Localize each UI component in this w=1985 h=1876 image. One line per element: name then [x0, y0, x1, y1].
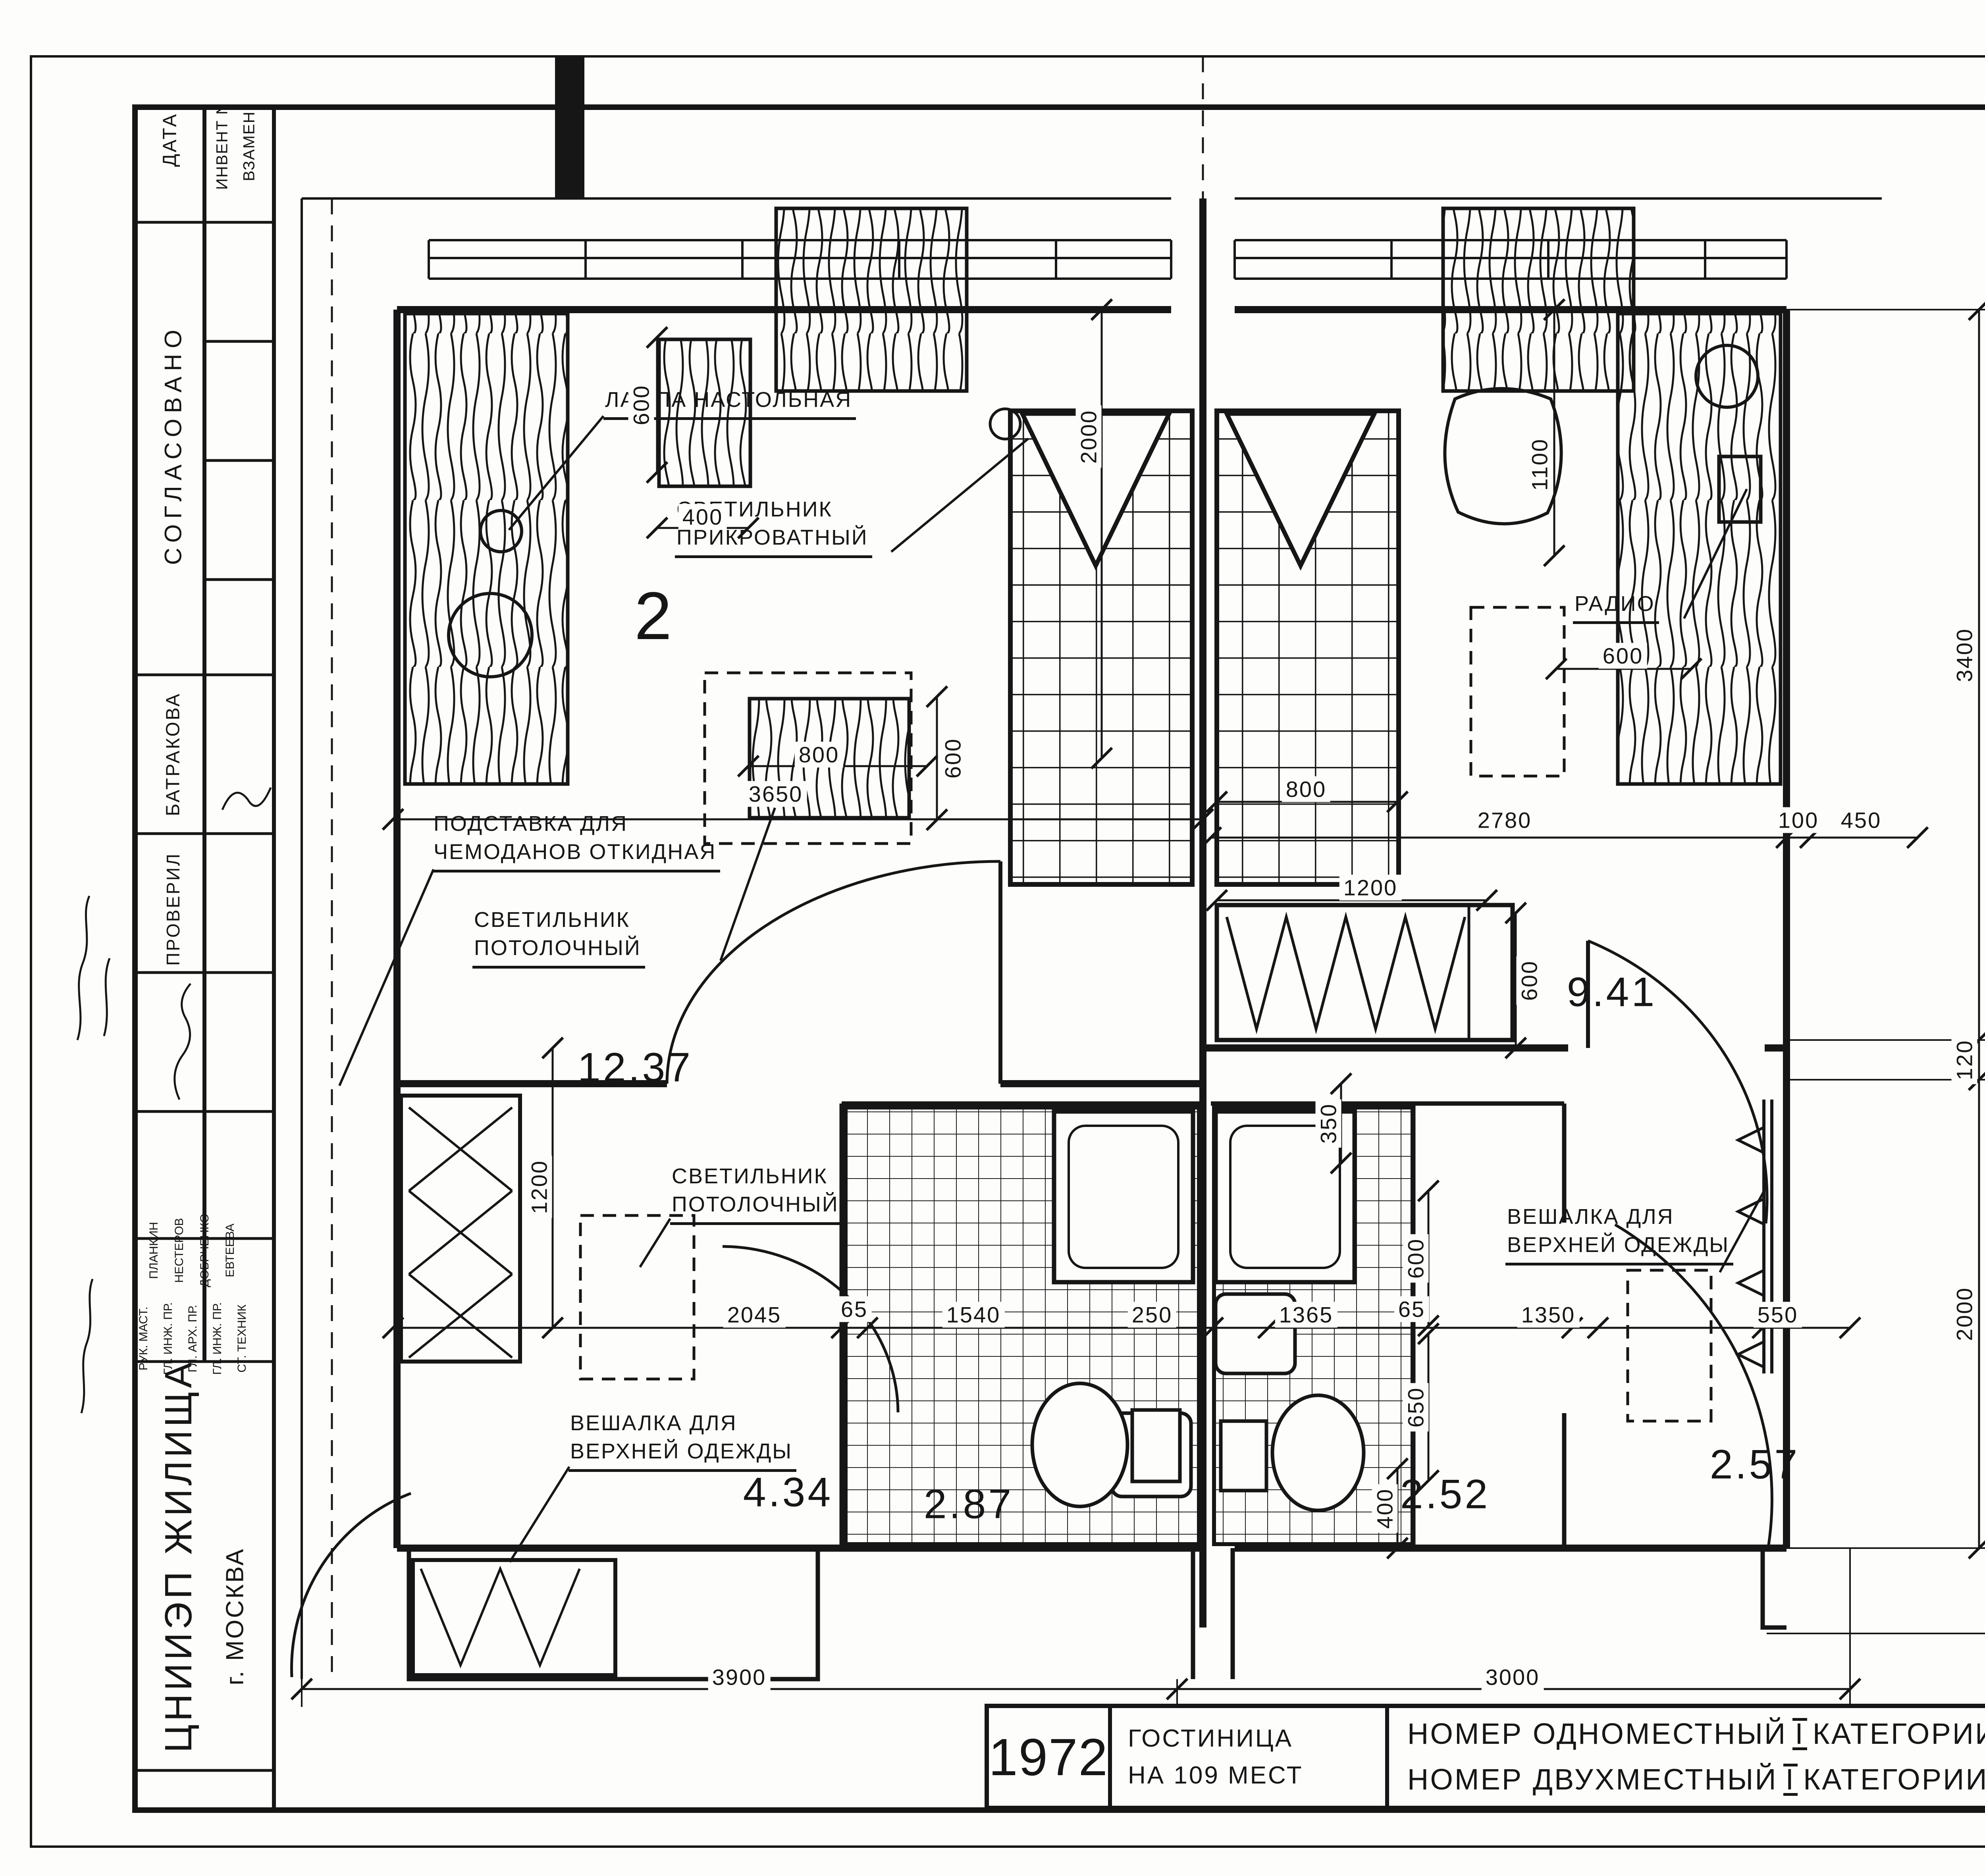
- closet-left: [401, 1096, 520, 1362]
- dimension-label: 1350: [1517, 1302, 1580, 1328]
- drawing-title-line2: НОМЕР ДВУХМЕСТНЫЙIКАТЕГОРИИ: [1407, 1757, 1985, 1803]
- stamp-instead-label: ВЗАМЕН: [241, 111, 258, 181]
- dimension-label: 800: [795, 742, 843, 768]
- dimension-label: 1540: [942, 1302, 1005, 1328]
- stamp-agreed-label: СОГЛАСОВАНО: [160, 324, 187, 565]
- floor-plan-linework: [0, 0, 1985, 1876]
- object-line2: НА 109 МЕСТ: [1128, 1757, 1303, 1794]
- dimension-label: 550: [1754, 1302, 1802, 1328]
- dimension-label: 2780: [1474, 807, 1536, 833]
- drawing-sheet: 12 ДАТА ИНВЕНТ N ВЗАМЕН СОГЛАСОВАНО БАТР…: [0, 0, 1985, 1876]
- room-area-value: 2.57: [1710, 1441, 1800, 1489]
- room-area-value: 2.52: [1400, 1471, 1490, 1518]
- coat-rack-right: [1764, 1100, 1772, 1373]
- annotation-label: СВЕТИЛЬНИК ПОТОЛОЧНЫЙ: [670, 1162, 843, 1225]
- dimension-label: 2000: [1952, 1283, 1977, 1345]
- window-shelf-right: [1443, 208, 1634, 391]
- annotation-label: РАДИО: [1573, 590, 1659, 624]
- annotation-label: СВЕТИЛЬНИК ПОТОЛОЧНЫЙ: [472, 906, 645, 969]
- stamp-date-label: ДАТА: [159, 113, 181, 167]
- stamp-checked-label: ПРОВЕРИЛ: [162, 852, 184, 966]
- room-area-value: 4.34: [743, 1469, 833, 1516]
- vestibule-coat-closet: [413, 1560, 615, 1675]
- dimension-label: 350: [1316, 1099, 1341, 1148]
- stamp-name: ДОБРЧЕНКО: [198, 1213, 212, 1287]
- dimension-label: 2000: [1076, 406, 1102, 468]
- stamp-city: г. МОСКВА: [221, 1548, 249, 1685]
- stamp-role: СТ. ТЕХНИК: [235, 1304, 249, 1372]
- room-area-value: 12.37: [578, 1044, 693, 1092]
- stamp-name-batrakova: БАТРАКОВА: [162, 692, 184, 816]
- dimension-label: 2045: [723, 1302, 786, 1328]
- annotation-label: ВЕШАЛКА ДЛЯ ВЕРХНЕЙ ОДЕЖДЫ: [1505, 1203, 1733, 1265]
- title-block-object: ГОСТИНИЦА НА 109 МЕСТ: [1108, 1708, 1385, 1806]
- dimension-label: 1365: [1275, 1302, 1337, 1328]
- fold-mark: [555, 56, 584, 198]
- dimension-label: 650: [1403, 1383, 1429, 1431]
- title-block: 1972 ГОСТИНИЦА НА 109 МЕСТ НОМЕР ОДНОМЕС…: [985, 1704, 1985, 1810]
- stamp-name: ПЛАНКИН: [147, 1222, 161, 1279]
- title-block-drawing-title: НОМЕР ОДНОМЕСТНЫЙIКАТЕГОРИИ И НОМЕР ДВУХ…: [1385, 1708, 1985, 1806]
- stamp-name: ЕВТЕЕВА: [224, 1223, 237, 1277]
- dimension-label: 65: [837, 1296, 872, 1322]
- toilet-2: [1272, 1395, 1364, 1510]
- window-shelf-left: [776, 208, 967, 391]
- object-line1: ГОСТИНИЦА: [1128, 1720, 1293, 1757]
- stamp-invent-label: ИНВЕНТ N: [214, 102, 231, 190]
- dimension-label: 3900: [708, 1664, 771, 1690]
- dimension-label: 65: [1394, 1296, 1429, 1322]
- dimension-label: 3000: [1482, 1664, 1544, 1690]
- dimension-label: 600: [1517, 956, 1542, 1005]
- dimension-label: 450: [1837, 807, 1885, 833]
- dimension-label: 800: [1282, 776, 1330, 802]
- stamp-role: ГЛ. ИНЖ. ПР.: [211, 1302, 224, 1375]
- dimension-label: 3650: [745, 781, 807, 807]
- dimension-label: 250: [1128, 1302, 1176, 1328]
- dimension-label: 600: [1403, 1234, 1429, 1283]
- room-area-value: 2.87: [924, 1481, 1014, 1528]
- toilet-1: [1032, 1383, 1127, 1506]
- dimension-label: 400: [678, 504, 727, 530]
- room-area-value: 9.41: [1567, 969, 1657, 1016]
- annotation-label: ПОДСТАВКА ДЛЯ ЧЕМОДАНОВ ОТКИДНАЯ: [432, 810, 720, 873]
- dimension-label: 100: [1774, 807, 1823, 833]
- dimension-label: 600: [628, 381, 654, 429]
- dimension-label: 1100: [1527, 434, 1553, 495]
- dimension-label: 600: [940, 734, 966, 782]
- stamp-name: НЕСТЕРОВ: [173, 1218, 186, 1283]
- dimension-label: 1200: [526, 1156, 552, 1218]
- room-tag-2: 2: [634, 577, 672, 655]
- dimension-label: 120: [1952, 1036, 1977, 1084]
- dimension-label: 1200: [1339, 875, 1402, 901]
- dimension-label: 3400: [1952, 624, 1977, 686]
- title-block-year: 1972: [989, 1708, 1108, 1806]
- stamp-org-name: ЦНИИЭП ЖИЛИЩА: [157, 1360, 200, 1753]
- dimension-label: 600: [1599, 643, 1647, 669]
- drawing-title-line1: НОМЕР ОДНОМЕСТНЫЙIКАТЕГОРИИ И: [1407, 1711, 1985, 1757]
- desk-left: [405, 314, 568, 784]
- stamp-role: РУК. МАСТ.: [137, 1307, 150, 1371]
- annotation-label: ВЕШАЛКА ДЛЯ ВЕРХНЕЙ ОДЕЖДЫ: [569, 1409, 796, 1472]
- dimension-label: 400: [1372, 1484, 1398, 1533]
